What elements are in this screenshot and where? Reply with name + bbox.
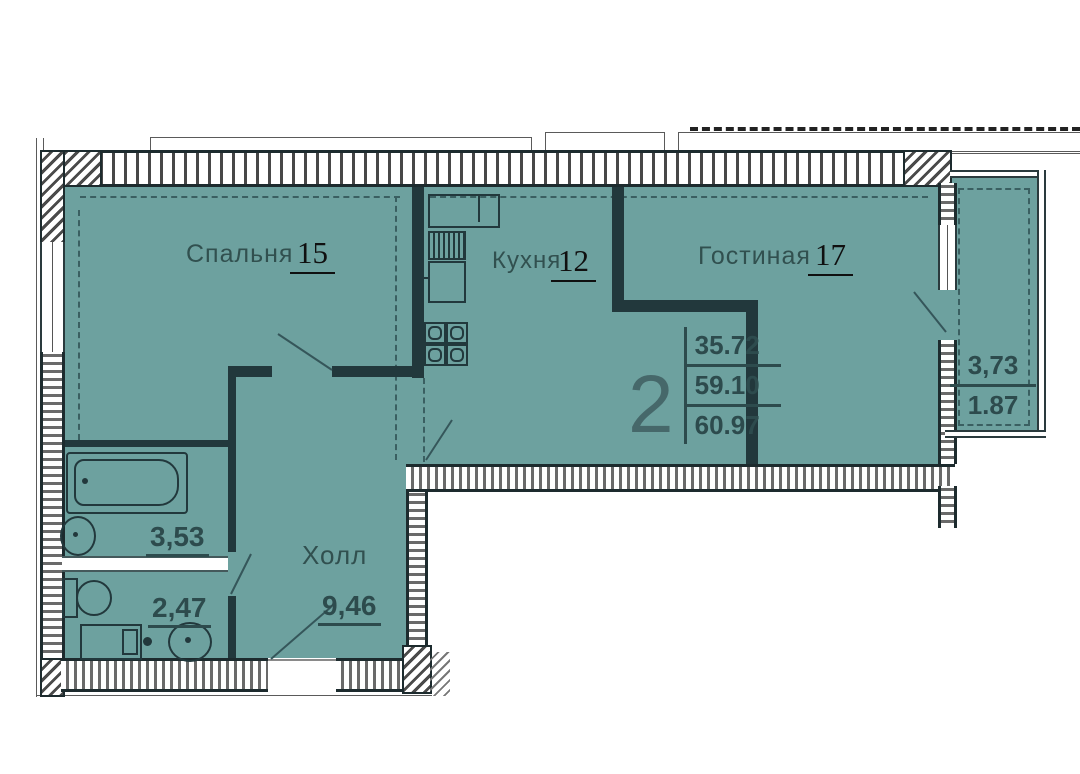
balcony-area-block: 3,73 1.87 bbox=[950, 350, 1036, 421]
stove-burner bbox=[424, 322, 446, 344]
wall-kitchen-living-horiz bbox=[612, 300, 758, 312]
summary-areas: 35.72 59.10 60.97 bbox=[684, 327, 781, 444]
wall-bathroom-right bbox=[228, 372, 236, 658]
wall-kitchen-living-vert bbox=[612, 187, 624, 312]
bedroom-label: Спальня bbox=[186, 240, 293, 269]
entrance-threshold bbox=[268, 659, 336, 661]
wall-balcony-partition-top bbox=[938, 183, 957, 225]
facade-dashes-top-right bbox=[690, 127, 1080, 131]
hall-area-value: 9,46 bbox=[318, 590, 381, 626]
living-room-label: Гостиная bbox=[698, 242, 811, 271]
floor-plan: Спальня 15 Кухня 12 Гостиная 17 Холл 9,4… bbox=[0, 0, 1080, 774]
washing-machine-knob bbox=[143, 637, 152, 646]
wall-left-top-pier bbox=[40, 150, 65, 244]
wall-bathroom-top bbox=[65, 440, 228, 447]
bathroom-sink bbox=[60, 516, 96, 556]
stove-burner bbox=[446, 322, 468, 344]
wall-bottom-right bbox=[336, 658, 402, 692]
dashed-line-bedroom-right bbox=[395, 196, 397, 460]
bathroom-sink-drain bbox=[73, 532, 78, 537]
bedroom-area-number: 15 bbox=[290, 235, 335, 274]
living-area-value: 35.72 bbox=[687, 327, 781, 367]
apartment-summary: 2 35.72 59.10 60.97 bbox=[628, 327, 781, 444]
wall-top bbox=[55, 150, 950, 187]
kitchen-sink bbox=[428, 261, 466, 303]
divider-bath-wc bbox=[62, 556, 228, 572]
bathtub-drain bbox=[82, 478, 88, 484]
dashed-line-bedroom-left bbox=[78, 210, 80, 440]
facade-bottom bbox=[36, 695, 432, 696]
kitchen-counter-rack bbox=[428, 231, 466, 260]
stove-burner bbox=[446, 344, 468, 366]
dashed-line-kitchen-living-top bbox=[430, 196, 928, 198]
dashed-line-kitchen-open-boundary bbox=[423, 378, 425, 462]
balcony-wall-top bbox=[950, 170, 1046, 178]
washing-machine-door bbox=[122, 629, 138, 655]
balcony-wall-bottom bbox=[945, 430, 1046, 438]
dashed-line-bedroom-top bbox=[80, 196, 400, 198]
floor-area-value: 59.10 bbox=[687, 367, 781, 407]
wall-living-bottom bbox=[406, 464, 955, 492]
toilet-bowl bbox=[76, 580, 112, 616]
wall-bottom-left bbox=[61, 658, 268, 692]
balcony-wall-right bbox=[1037, 170, 1046, 436]
hall-label: Холл bbox=[302, 540, 367, 571]
window-balcony-block bbox=[938, 225, 957, 290]
fridge-divider bbox=[478, 196, 480, 222]
wall-bedroom-kitchen bbox=[412, 187, 424, 378]
bathtub-inner bbox=[74, 459, 179, 506]
door-opening-balcony bbox=[938, 290, 951, 340]
bathroom-area-value: 3,53 bbox=[146, 521, 209, 557]
stove bbox=[424, 322, 468, 366]
kitchen-area-number: 12 bbox=[551, 243, 596, 282]
wall-hall-right bbox=[406, 470, 428, 645]
stove-burner bbox=[424, 344, 446, 366]
wall-right-below-balcony bbox=[938, 486, 957, 528]
wall-bedroom-bottom-b bbox=[332, 366, 412, 377]
hatch-outside-hall-corner bbox=[430, 652, 450, 696]
rooms-count: 2 bbox=[628, 366, 674, 444]
wc-basin-drain bbox=[185, 637, 191, 643]
facade-left-outer bbox=[36, 138, 37, 697]
fridge bbox=[428, 194, 500, 228]
wall-pier-hall-corner bbox=[402, 645, 432, 694]
balcony-area-value: 3,73 bbox=[950, 350, 1036, 381]
balcony-area-divider bbox=[950, 384, 1036, 387]
balcony-area-coefficient-value: 1.87 bbox=[950, 390, 1036, 421]
wall-pier-top-right bbox=[903, 150, 952, 187]
door-opening-bathroom bbox=[228, 552, 236, 596]
total-area-value: 60.97 bbox=[687, 407, 781, 444]
toilet-area-value: 2,47 bbox=[148, 592, 211, 628]
window-left-wall bbox=[40, 242, 65, 352]
living-room-area-number: 17 bbox=[808, 237, 853, 276]
